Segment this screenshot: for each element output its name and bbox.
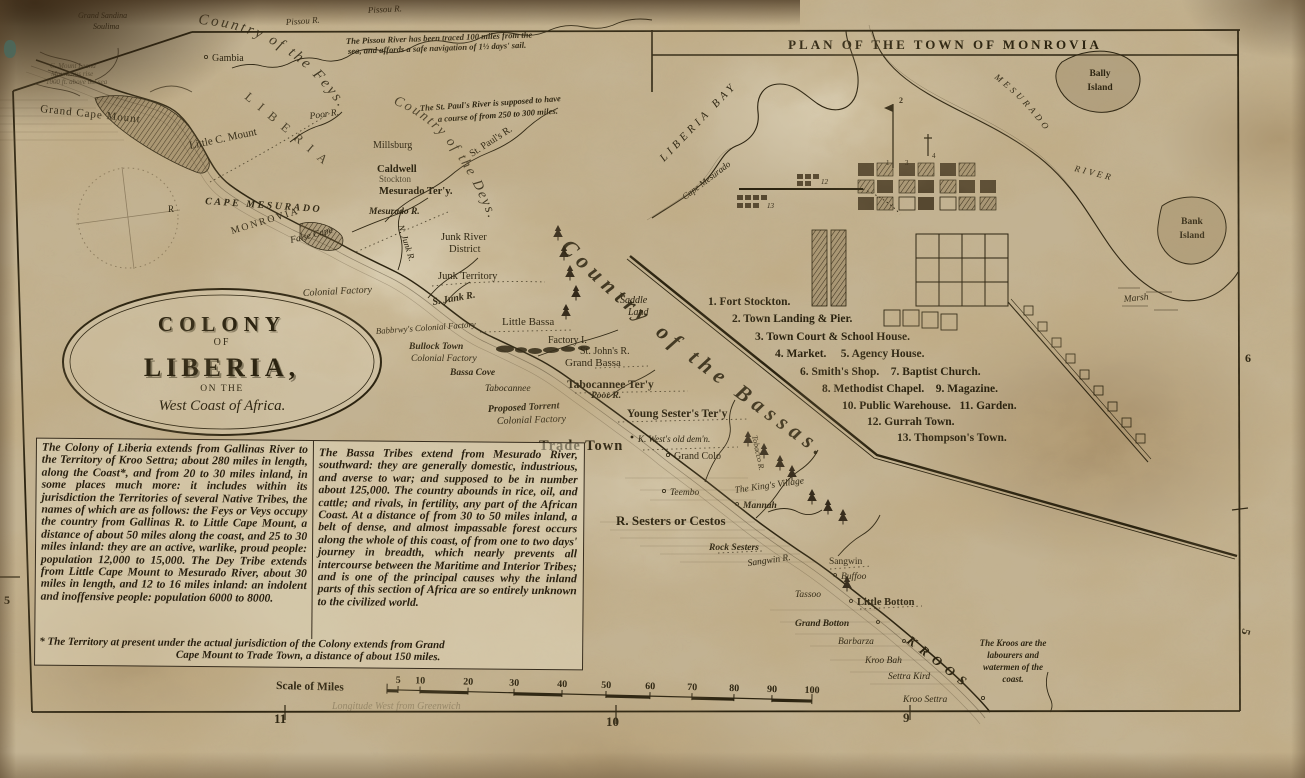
antique-map-of-liberia: 5 6 5 11 10 9 — [0, 0, 1305, 778]
bassa-tribes-description: The Bassa Tribes extend from Mesurado Ri… — [313, 445, 583, 641]
territory-footnote: * The Territory at present under the act… — [39, 637, 577, 665]
colony-description: The Colony of Liberia extends from Galli… — [35, 439, 314, 639]
description-panel: The Colony of Liberia extends from Galli… — [34, 438, 585, 671]
